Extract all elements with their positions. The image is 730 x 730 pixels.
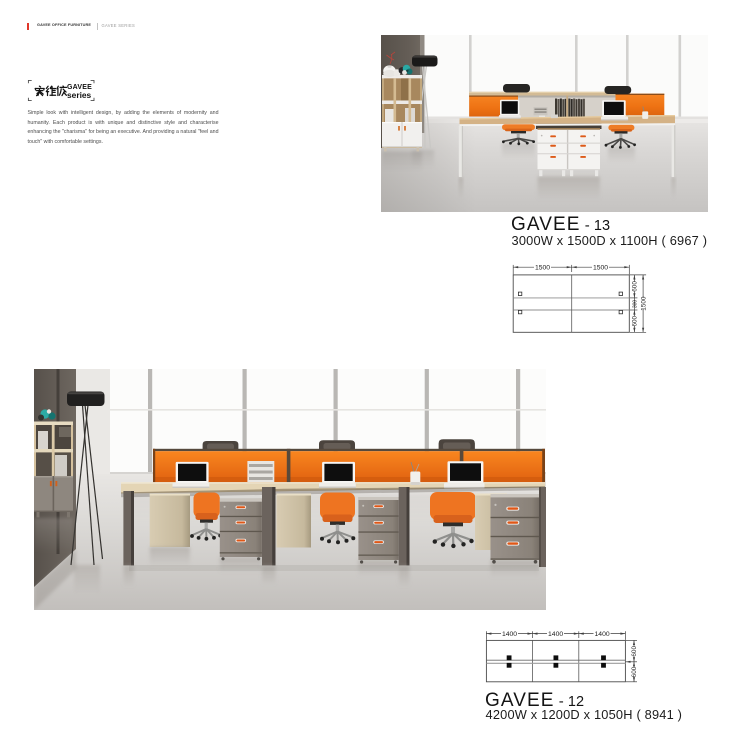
svg-text:300: 300 (633, 300, 639, 309)
svg-text:600: 600 (631, 666, 638, 677)
svg-text:1400: 1400 (595, 631, 610, 638)
svg-text:1500: 1500 (535, 265, 550, 272)
svg-text:600: 600 (632, 281, 639, 292)
svg-text:1400: 1400 (502, 631, 517, 638)
svg-text:1400: 1400 (548, 631, 563, 638)
svg-text:1500: 1500 (640, 296, 647, 311)
svg-text:600: 600 (632, 315, 639, 326)
svg-text:600: 600 (631, 646, 638, 657)
svg-text:1500: 1500 (593, 265, 608, 272)
